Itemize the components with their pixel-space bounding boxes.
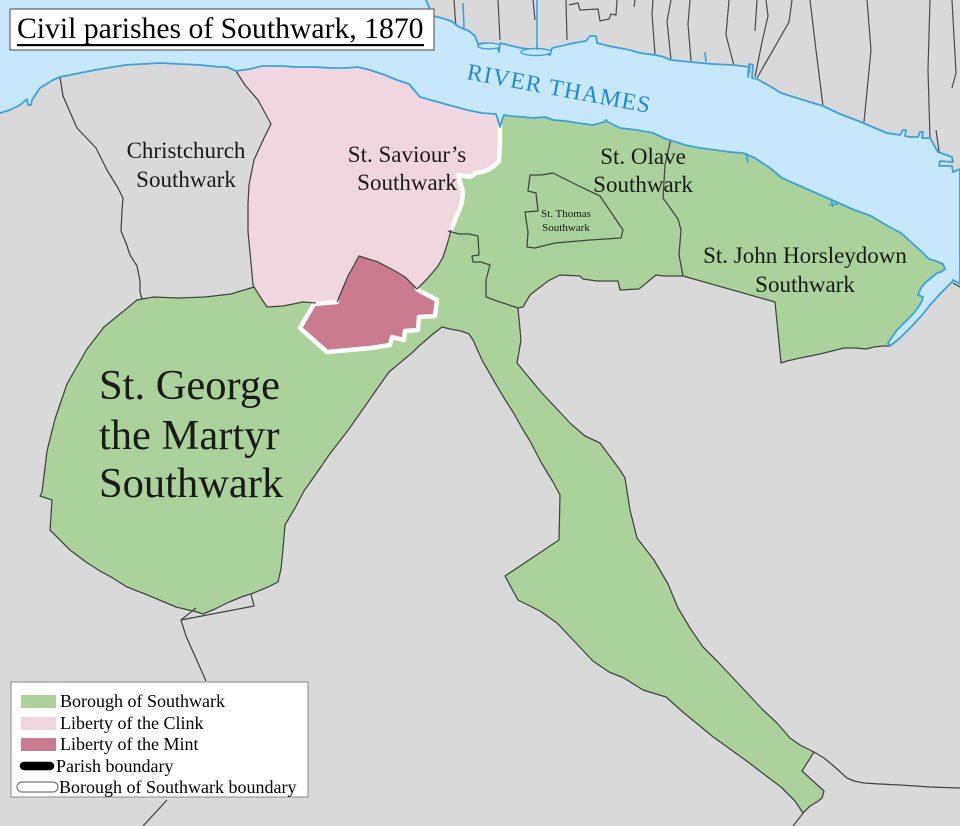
svg-text:St. Saviour’s: St. Saviour’s [348, 142, 466, 167]
svg-text:Southwark: Southwark [542, 222, 590, 234]
svg-text:Southwark: Southwark [99, 460, 284, 507]
svg-text:Borough of Southwark boundary: Borough of Southwark boundary [59, 777, 296, 797]
svg-text:St. Thomas: St. Thomas [541, 208, 591, 220]
svg-text:Christchurch: Christchurch [127, 138, 246, 163]
svg-text:Parish boundary: Parish boundary [56, 756, 173, 776]
svg-text:St. George: St. George [99, 362, 280, 409]
svg-text:Liberty of the Clink: Liberty of the Clink [60, 713, 203, 733]
svg-text:Southwark: Southwark [593, 172, 693, 197]
svg-text:the Martyr: the Martyr [99, 412, 280, 459]
svg-text:Liberty of the Mint: Liberty of the Mint [60, 734, 198, 754]
svg-text:Borough of Southwark: Borough of Southwark [60, 691, 225, 711]
svg-text:Southwark: Southwark [136, 167, 236, 192]
svg-text:Civil parishes of Southwark, 1: Civil parishes of Southwark, 1870 [17, 13, 424, 45]
svg-text:Southwark: Southwark [357, 170, 457, 195]
svg-text:Southwark: Southwark [755, 272, 855, 297]
svg-text:St. John Horsleydown: St. John Horsleydown [703, 243, 907, 268]
svg-text:St. Olave: St. Olave [600, 144, 686, 169]
